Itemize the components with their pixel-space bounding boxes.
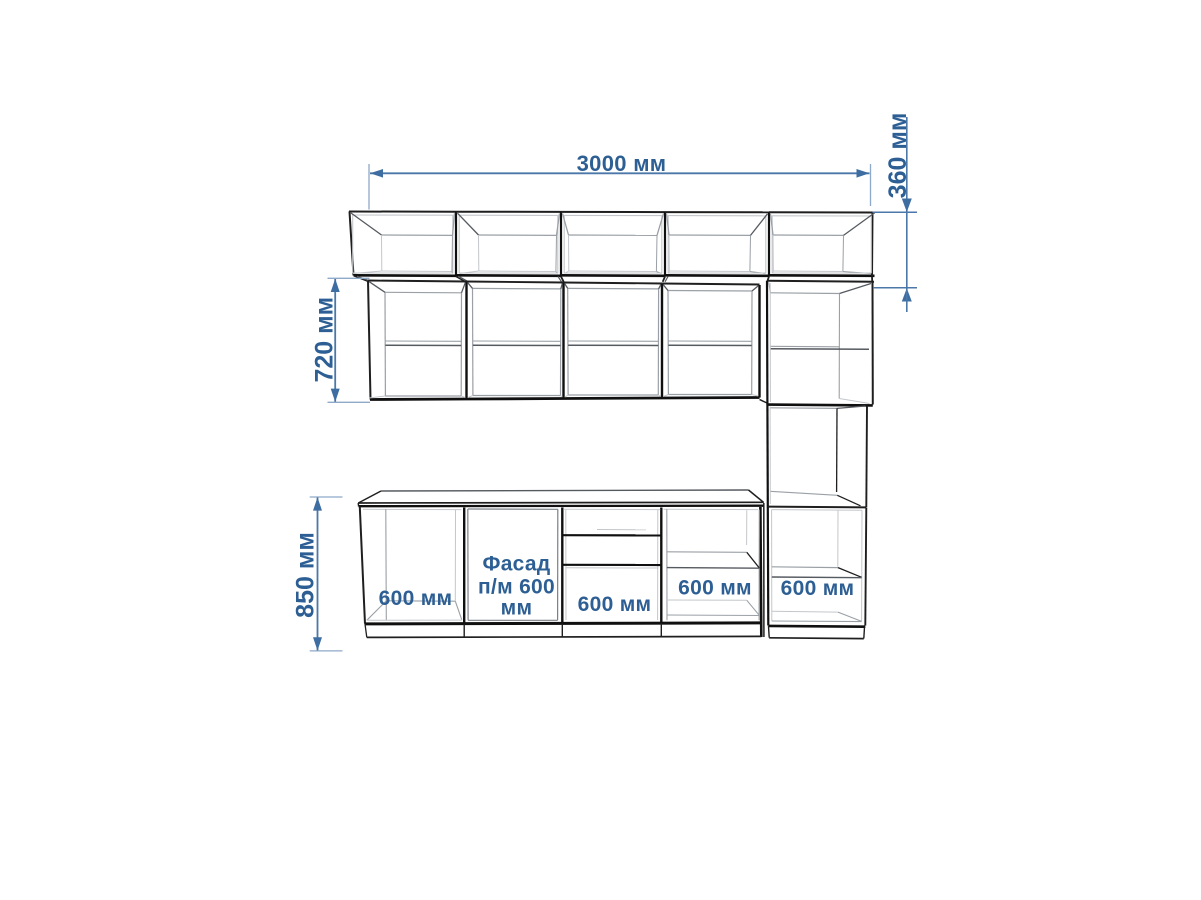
- svg-text:360 мм: 360 мм: [884, 113, 912, 199]
- svg-text:600 мм: 600 мм: [781, 577, 855, 600]
- svg-text:600 мм: 600 мм: [578, 593, 652, 616]
- svg-text:600 мм: 600 мм: [678, 576, 752, 599]
- svg-text:720 мм: 720 мм: [311, 297, 339, 383]
- svg-text:мм: мм: [501, 597, 533, 620]
- svg-text:п/м 600: п/м 600: [478, 576, 555, 599]
- svg-text:3000 мм: 3000 мм: [577, 151, 667, 176]
- svg-text:Фасад: Фасад: [482, 553, 550, 576]
- svg-text:850 мм: 850 мм: [292, 532, 320, 618]
- svg-text:600 мм: 600 мм: [379, 587, 453, 610]
